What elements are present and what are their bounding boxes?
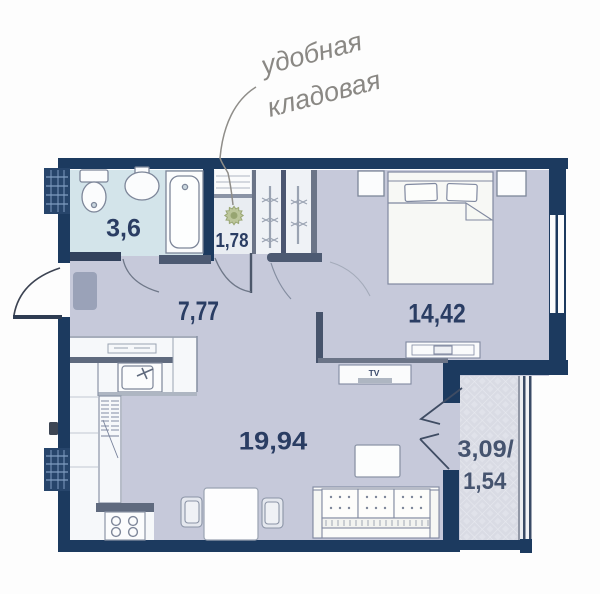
svg-text:14,42: 14,42 xyxy=(408,299,466,329)
svg-text:TV: TV xyxy=(369,368,380,378)
svg-text:7,77: 7,77 xyxy=(178,296,219,326)
svg-text:3,6: 3,6 xyxy=(106,215,141,243)
svg-text:1,78: 1,78 xyxy=(216,230,249,252)
svg-text:3,09/: 3,09/ xyxy=(457,436,514,463)
svg-text:1,54: 1,54 xyxy=(463,468,507,495)
svg-text:19,94: 19,94 xyxy=(239,427,308,455)
